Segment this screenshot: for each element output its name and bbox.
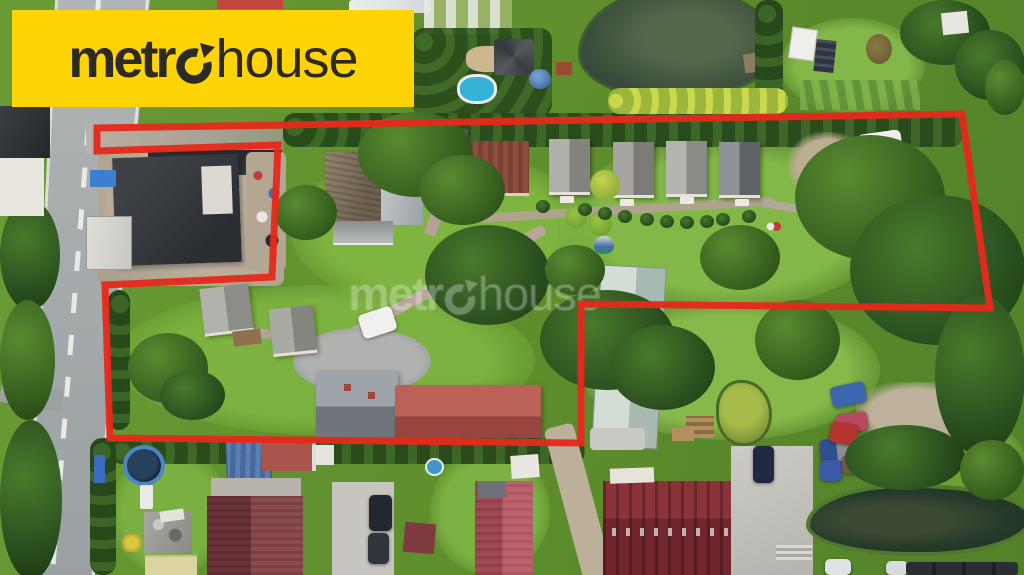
white-building-roof bbox=[0, 106, 50, 158]
white-tank bbox=[140, 485, 153, 509]
trampoline bbox=[123, 445, 165, 486]
roadside-tree bbox=[0, 200, 60, 310]
white-shed-top-right bbox=[941, 11, 969, 36]
person-with-mower bbox=[766, 220, 781, 233]
big-bush bbox=[160, 370, 225, 420]
tree bbox=[960, 440, 1024, 500]
cone-bush bbox=[680, 216, 694, 229]
parked-dark-cars-row bbox=[906, 562, 1018, 575]
logo-text-light: house bbox=[215, 28, 357, 90]
beige-building bbox=[145, 555, 197, 575]
cottage bbox=[549, 139, 590, 195]
picnic-table bbox=[735, 199, 749, 206]
cone-bush bbox=[700, 215, 714, 228]
upper-pond bbox=[578, 0, 780, 100]
neighbor-white-shed bbox=[86, 216, 132, 270]
gray-sheds bbox=[478, 481, 506, 498]
small-cabin bbox=[269, 305, 318, 357]
light-pavement bbox=[590, 428, 645, 450]
hedge-left-inner bbox=[108, 290, 130, 430]
cottage bbox=[666, 141, 707, 197]
parked-dark-car bbox=[369, 495, 392, 531]
white-caravan bbox=[788, 26, 818, 61]
small-cabin bbox=[199, 283, 253, 337]
picnic-table bbox=[680, 197, 694, 204]
blue-pool bbox=[457, 74, 497, 104]
maroon-roof-house bbox=[207, 496, 303, 575]
cone-bush bbox=[742, 210, 756, 223]
wall-strip bbox=[211, 478, 301, 498]
yellow-green-hedge bbox=[608, 88, 788, 114]
parked-dark-car bbox=[368, 533, 389, 564]
pallet-stack bbox=[672, 428, 694, 441]
tree bbox=[935, 295, 1024, 455]
skylight-row bbox=[612, 528, 730, 536]
cone-bush bbox=[660, 215, 674, 228]
blue-tarp bbox=[90, 170, 116, 187]
chimney bbox=[368, 392, 375, 399]
tree bbox=[420, 155, 505, 225]
red-tent-top bbox=[217, 0, 283, 9]
cone-bush bbox=[618, 210, 632, 223]
small-blue-pool bbox=[425, 458, 444, 476]
gray-gable-house bbox=[316, 371, 398, 445]
cone-bush bbox=[598, 207, 612, 220]
white-gable bbox=[610, 467, 654, 484]
dome-tent-small bbox=[594, 236, 614, 254]
tree bbox=[755, 300, 840, 380]
picnic-table bbox=[620, 199, 634, 206]
steps bbox=[776, 545, 812, 560]
access-corridor-gravel bbox=[97, 129, 283, 150]
brown-bush bbox=[866, 34, 892, 64]
yellow-flowers bbox=[122, 534, 142, 552]
chimney bbox=[344, 384, 351, 391]
dark-blue-car bbox=[753, 446, 774, 483]
tree bbox=[275, 185, 337, 240]
tree bbox=[845, 425, 965, 490]
solar-panel bbox=[813, 39, 836, 73]
metrohouse-logo-banner: metr house bbox=[12, 10, 414, 107]
cottage bbox=[719, 142, 760, 198]
tree bbox=[610, 325, 715, 410]
garden-gazebo bbox=[494, 39, 534, 75]
ornamental-bush bbox=[590, 170, 620, 200]
roadside-tree bbox=[0, 300, 55, 420]
green-pond bbox=[716, 380, 772, 446]
small-maroon-roof bbox=[403, 522, 436, 555]
tree bbox=[545, 245, 605, 295]
cone-bush bbox=[716, 213, 730, 226]
logo-o-arrow-icon bbox=[172, 41, 216, 85]
white-building-wall bbox=[0, 158, 44, 216]
tree bbox=[985, 60, 1024, 115]
white-car bbox=[886, 561, 908, 575]
white-shed bbox=[510, 454, 540, 479]
logo-text-bold: metr bbox=[68, 28, 173, 90]
white-car bbox=[825, 559, 851, 575]
blue-mat bbox=[94, 455, 105, 483]
garden-rows bbox=[800, 80, 920, 110]
red-tile-roof bbox=[262, 441, 316, 471]
roadside-tree bbox=[0, 420, 62, 575]
tree bbox=[700, 225, 780, 290]
cone-bush bbox=[640, 213, 654, 226]
house-south-wall bbox=[333, 221, 393, 245]
picnic-table bbox=[560, 196, 574, 203]
blue-car bbox=[820, 460, 842, 481]
white-gable-wall bbox=[201, 165, 233, 214]
white-shed bbox=[316, 445, 334, 465]
tree bbox=[425, 225, 550, 325]
cone-bush bbox=[578, 203, 592, 216]
cone-bush bbox=[536, 200, 550, 213]
dome-tent bbox=[529, 69, 551, 89]
aerial-photo: metr house metr house bbox=[0, 0, 1024, 575]
red-bench bbox=[556, 62, 572, 75]
